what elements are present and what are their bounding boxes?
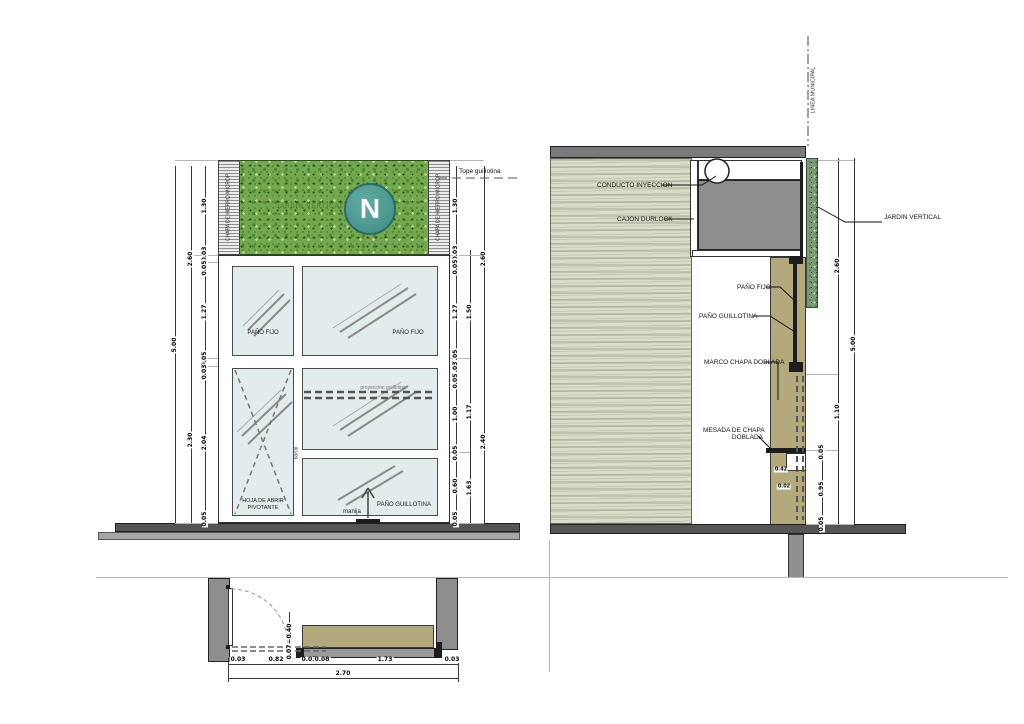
ext-line <box>450 160 484 161</box>
door-swing-arc <box>231 589 288 646</box>
handle-label: manija <box>343 509 361 515</box>
dim: 0.03 <box>230 657 247 663</box>
ext-line <box>175 160 218 161</box>
plan-track-cap-right <box>434 648 442 658</box>
durlock-box-label: CAJON DURLOCK <box>617 216 673 223</box>
dim: 0.05 <box>819 444 825 461</box>
dim: 2.60 <box>481 251 487 268</box>
projection-label: proyeccion guillotina <box>360 385 405 391</box>
dim: 1.10 <box>835 404 841 421</box>
elevation-floor-base <box>98 532 520 540</box>
plan-door-leaf <box>228 588 233 646</box>
plan-reference-line-h <box>96 577 1008 578</box>
dim: 0.95 <box>819 481 825 498</box>
guillotine-pane-label: PAÑO GUILLOTINA <box>377 502 431 508</box>
dim: 0.05 <box>202 260 208 277</box>
mesada-front <box>786 453 806 471</box>
dim: 0.40 <box>287 623 293 640</box>
dim: 1.27 <box>202 304 208 321</box>
plan-frame-block-right <box>436 642 442 648</box>
hatch-strip-label-right: CHAPA DE HIERRO MICROP. <box>437 173 442 241</box>
ext-line <box>818 160 854 161</box>
fixed-pane-upper-right <box>302 266 438 356</box>
plan-reference-line-v <box>549 540 550 672</box>
dim: 1.30 <box>202 198 208 215</box>
municipal-line-label: LINEA MUNICIPAL <box>811 67 817 114</box>
dim: 0.07 <box>287 644 293 661</box>
dim: 2.04 <box>202 435 208 452</box>
glazing-top-block <box>789 256 803 264</box>
durlock-box <box>698 180 802 250</box>
pivot-label-line1: HOJA DE ABRIR <box>242 498 284 504</box>
dim: 2.30 <box>188 432 194 449</box>
dim: 2.60 <box>188 251 194 268</box>
section-fixed-pane-label: PAÑO FIJO <box>737 284 771 291</box>
durlock-side-strip <box>690 160 698 257</box>
ext-line <box>806 374 838 375</box>
dim-line-elev-left-inner <box>205 166 206 525</box>
glazing-bottom-block <box>789 362 803 372</box>
middle-pane <box>302 368 438 450</box>
dim: 0.60 <box>453 478 459 495</box>
dim: 0.05 <box>453 511 459 528</box>
door-hinge-bottom <box>226 645 230 649</box>
fixed-pane-upper-left <box>232 266 294 356</box>
section-glazing-line <box>793 262 797 366</box>
dim: 0.03 <box>202 364 208 381</box>
durlock-top-strip <box>698 160 802 180</box>
dim-line-elev-left-mid <box>191 166 192 525</box>
dim: 0.05 <box>202 511 208 528</box>
dim: 0.03 <box>444 657 461 663</box>
dim: 0.82 <box>268 657 285 663</box>
durlock-right-edge <box>800 162 803 257</box>
dim-line-plan-chain <box>228 664 458 665</box>
architectural-drawing-canvas: N <box>0 0 1024 724</box>
drawing-strokes <box>0 0 1024 724</box>
dim: 0.42 <box>774 468 788 473</box>
fixed-pane-right-label: PAÑO FIJO <box>392 330 423 336</box>
dim: 1.27 <box>453 304 459 321</box>
garden-elevation-label: JARDIN VERTICAL <box>276 204 344 210</box>
hatch-strip-label-left: CHAPA DE HIERRO MICROP. <box>227 173 232 241</box>
dim: 0.08 <box>314 657 331 663</box>
section-top-slab <box>550 146 806 158</box>
bent-sheet-frame-label: MARCO CHAPA DOBLADA <box>704 359 784 366</box>
dim-line-elev-right-inner <box>456 166 457 525</box>
pivot-label-line2: PIVOTANTE <box>248 505 279 511</box>
dim: 0.05 <box>819 516 825 533</box>
fixed-pane-left-label: PAÑO FIJO <box>247 330 278 336</box>
injection-duct-label: CONDUCTO INYECCION <box>597 182 672 189</box>
door-hinge-top <box>226 585 230 589</box>
tope-guillotina-label: Tope guillotina <box>459 168 501 175</box>
ext-line <box>806 524 854 525</box>
section-floor-slab <box>550 524 906 534</box>
dim-line-section-mid <box>838 158 839 528</box>
section-guillotine-label: PAÑO GUILLOTINA <box>699 313 757 320</box>
dim: 1.63 <box>467 480 473 497</box>
mesada-label-line2: DOBLADA <box>703 434 763 441</box>
dim: 2.60 <box>835 258 841 275</box>
durlock-bottom-strip <box>692 250 802 257</box>
plan-pier-left <box>208 578 230 662</box>
dim-total: 2.70 <box>335 671 352 677</box>
dim: 0.05 <box>453 373 459 390</box>
dim-line-plan-total <box>228 678 458 679</box>
plan-mesada <box>302 625 434 648</box>
plan-pier-right <box>436 578 458 650</box>
logo-circle-n: N <box>344 183 396 235</box>
dim-line-elev-right-outer <box>484 166 485 525</box>
section-wall <box>550 158 692 524</box>
mullion-label: barral <box>295 447 300 460</box>
dim: 0.05 <box>453 259 459 276</box>
ext-line <box>175 523 218 524</box>
logo-letter: N <box>360 193 380 225</box>
dim: 1.17 <box>467 404 473 421</box>
dim: 0.02 <box>777 485 791 490</box>
dim: 5.00 <box>851 336 857 353</box>
dim: 1.00 <box>453 406 459 423</box>
dim: 2.40 <box>481 434 487 451</box>
dim: 0.05 <box>453 445 459 462</box>
dim: 5.00 <box>172 337 178 354</box>
pivot-door-pane <box>232 368 294 516</box>
dim: 1.50 <box>467 304 473 321</box>
dim: 1.30 <box>453 198 459 215</box>
section-wall-stub <box>788 534 804 578</box>
vertical-garden-section <box>806 158 818 308</box>
garden-section-label: JARDIN VERTICAL <box>884 214 941 221</box>
dim: 1.73 <box>377 657 394 663</box>
